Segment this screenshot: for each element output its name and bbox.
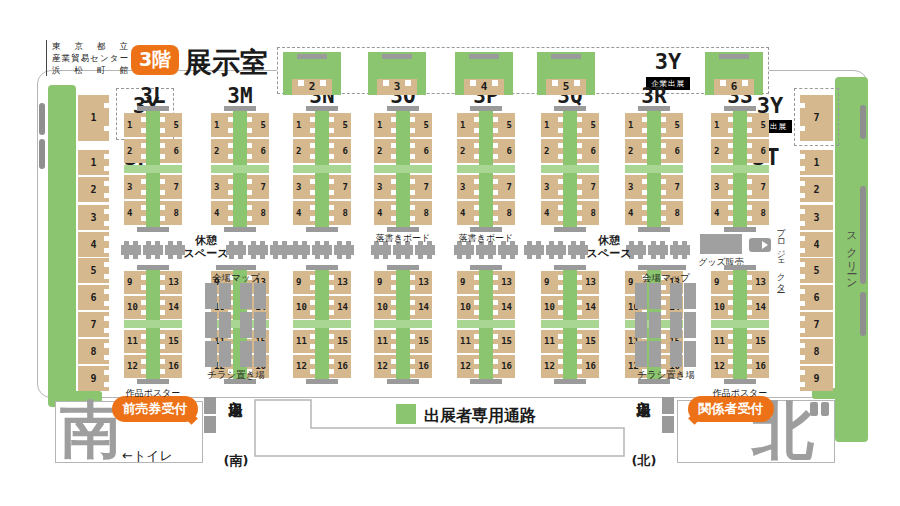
rest-chair — [527, 241, 532, 245]
chair-mark — [310, 154, 315, 159]
rest-chair — [571, 241, 576, 245]
island-header: 3R — [622, 84, 686, 108]
chair-mark — [474, 285, 479, 290]
chair-mark — [141, 205, 146, 210]
rest-chair — [238, 255, 243, 259]
chair-mark — [747, 117, 752, 122]
rest-chair — [488, 255, 493, 259]
chair-mark — [104, 301, 109, 306]
chair-mark — [228, 117, 233, 122]
aisle-cap — [719, 54, 749, 59]
rest-chair — [651, 255, 656, 259]
aisle-cap — [306, 379, 338, 384]
rest-chair — [168, 255, 173, 259]
rest-table — [546, 245, 566, 255]
chair-mark — [800, 289, 805, 294]
chair-mark — [800, 236, 805, 241]
chair-mark — [728, 300, 733, 305]
aisle-cap — [554, 227, 586, 232]
north-gate-paren: (北) — [620, 452, 668, 470]
chair-mark — [728, 359, 733, 364]
chair-mark — [474, 216, 479, 221]
aisle-crossing — [374, 165, 432, 173]
chair-mark — [747, 275, 752, 280]
chair-mark — [141, 369, 146, 374]
chair-mark — [642, 128, 647, 133]
screen-label: スクリーン — [843, 225, 858, 285]
chair-mark — [410, 285, 415, 290]
rest-space-line: スペース — [181, 247, 231, 260]
chair-mark — [474, 205, 479, 210]
aisle-crossing — [541, 320, 599, 328]
chair-mark — [391, 275, 396, 280]
chair-mark — [160, 275, 165, 280]
rest-chair — [293, 255, 298, 259]
chair-mark — [310, 190, 315, 195]
chair-mark — [329, 275, 334, 280]
chair-mark — [728, 154, 733, 159]
chair-mark — [558, 117, 563, 122]
chair-mark — [558, 334, 563, 339]
chair-mark — [391, 216, 396, 221]
flyer-table — [254, 283, 266, 309]
chair-mark — [558, 359, 563, 364]
north-mini-bar — [810, 402, 818, 416]
chair-mark — [410, 310, 415, 315]
chair-mark — [160, 359, 165, 364]
window-bar — [39, 103, 45, 135]
chair-mark — [104, 103, 109, 108]
chair-mark — [228, 179, 233, 184]
rest-table — [121, 245, 141, 255]
chair-mark — [642, 179, 647, 184]
aisle-cap — [387, 379, 419, 384]
chair-mark — [160, 300, 165, 305]
chair-mark — [800, 154, 805, 159]
chair-mark — [310, 216, 315, 221]
chair-mark — [247, 179, 252, 184]
chair-mark — [492, 80, 498, 86]
chair-mark — [247, 143, 252, 148]
rest-chair — [558, 255, 563, 259]
rest-chair — [682, 255, 687, 259]
rest-chair — [337, 255, 342, 259]
chair-mark — [410, 143, 415, 148]
flyer-table — [684, 312, 696, 338]
chair-mark — [728, 179, 733, 184]
aisle-crossing — [124, 320, 182, 328]
chair-mark — [493, 344, 498, 349]
rest-table — [476, 245, 496, 255]
chair-mark — [728, 128, 733, 133]
chair-mark — [642, 143, 647, 148]
chair-mark — [661, 310, 666, 315]
aisle-crossing — [457, 320, 515, 328]
chair-mark — [800, 209, 805, 214]
chair-mark — [577, 344, 582, 349]
rest-chair — [146, 241, 151, 245]
rest-chair — [324, 241, 329, 245]
flyer-table — [635, 312, 647, 338]
rest-chair — [396, 255, 401, 259]
chair-mark — [310, 128, 315, 133]
chair-mark — [160, 334, 165, 339]
chair-mark — [493, 369, 498, 374]
chair-mark — [310, 300, 315, 305]
chair-mark — [310, 179, 315, 184]
booth-table: 1 — [78, 95, 109, 141]
chair-mark — [141, 190, 146, 195]
chair-mark — [329, 359, 334, 364]
rest-chair — [510, 255, 515, 259]
chair-mark — [410, 190, 415, 195]
rest-chair — [466, 255, 471, 259]
chair-mark — [391, 179, 396, 184]
chair-mark — [410, 334, 415, 339]
rest-chair — [346, 241, 351, 245]
chair-mark — [391, 359, 396, 364]
chair-mark — [747, 128, 752, 133]
flyer-table — [254, 341, 266, 367]
rest-chair — [346, 255, 351, 259]
chair-mark — [577, 117, 582, 122]
aisle-crossing — [293, 165, 351, 173]
chair-mark — [558, 275, 563, 280]
chair-mark — [104, 221, 109, 226]
rest-table — [371, 245, 391, 255]
rest-space-label: 休憩スペース — [181, 234, 231, 260]
rest-chair — [282, 241, 287, 245]
chair-mark — [228, 143, 233, 148]
rest-chair — [155, 241, 160, 245]
chair-mark — [104, 316, 109, 321]
chair-mark — [160, 205, 165, 210]
chair-mark — [405, 80, 411, 86]
chair-mark — [391, 205, 396, 210]
rest-chair — [405, 255, 410, 259]
venue-name-block: 東京都立 産業貿易センター 浜松町館 — [46, 40, 128, 76]
chair-mark — [141, 344, 146, 349]
chair-mark — [410, 117, 415, 122]
chair-mark — [141, 334, 146, 339]
rest-table — [248, 245, 268, 255]
chair-mark — [160, 154, 165, 159]
chair-mark — [747, 179, 752, 184]
chair-mark — [141, 310, 146, 315]
chair-mark — [104, 166, 109, 171]
aisle-cap — [551, 54, 581, 59]
chair-mark — [642, 154, 647, 159]
chair-mark — [577, 190, 582, 195]
chair-mark — [141, 179, 146, 184]
chair-mark — [493, 117, 498, 122]
chair-mark — [747, 285, 752, 290]
chair-mark — [310, 310, 315, 315]
chair-mark — [160, 216, 165, 221]
chair-mark — [474, 154, 479, 159]
chair-mark — [577, 359, 582, 364]
aisle-cap — [554, 379, 586, 384]
chair-mark — [410, 179, 415, 184]
chair-mark — [329, 117, 334, 122]
chair-mark — [577, 205, 582, 210]
rest-table — [270, 245, 290, 255]
chair-mark — [310, 205, 315, 210]
chair-mark — [329, 310, 334, 315]
chair-mark — [661, 154, 666, 159]
north-mini-bar — [821, 402, 829, 416]
rest-space-line: 休憩 — [181, 234, 231, 247]
rest-table — [648, 245, 668, 255]
chair-mark — [310, 334, 315, 339]
chair-mark — [104, 209, 109, 214]
chair-mark — [493, 334, 498, 339]
aisle-crossing — [541, 165, 599, 173]
chair-mark — [310, 369, 315, 374]
window-bar — [860, 186, 866, 284]
chair-mark — [228, 205, 233, 210]
aisle-crossing — [124, 165, 182, 173]
chair-mark — [661, 334, 666, 339]
chair-mark — [728, 369, 733, 374]
rest-table — [143, 245, 163, 255]
island-header: 3L — [121, 84, 185, 108]
rest-chair — [155, 255, 160, 259]
rest-chair — [457, 255, 462, 259]
chair-mark — [493, 143, 498, 148]
venue-line: 東京都立 — [52, 40, 128, 52]
flyer-table — [219, 312, 231, 338]
rest-chair — [273, 241, 278, 245]
chair-mark — [577, 369, 582, 374]
chair-mark — [329, 128, 334, 133]
chair-mark — [160, 190, 165, 195]
rest-chair — [124, 255, 129, 259]
chair-mark — [410, 128, 415, 133]
left-aisle-strip — [48, 85, 76, 407]
rest-table — [454, 245, 474, 255]
chair-mark — [577, 310, 582, 315]
chair-mark — [558, 344, 563, 349]
chair-mark — [474, 310, 479, 315]
chair-mark — [104, 154, 109, 159]
chair-mark — [329, 216, 334, 221]
graffiti-board-label: 落書きボード — [454, 232, 518, 245]
chair-mark — [661, 179, 666, 184]
chair-mark — [661, 285, 666, 290]
rest-chair — [673, 241, 678, 245]
chair-mark — [800, 370, 805, 375]
chair-mark — [558, 216, 563, 221]
flyer-table — [635, 341, 647, 367]
north-gate-table — [662, 416, 674, 433]
chair-mark — [329, 143, 334, 148]
rest-chair — [293, 241, 298, 245]
chair-mark — [493, 128, 498, 133]
chair-mark — [747, 216, 752, 221]
rest-chair — [302, 255, 307, 259]
rest-chair — [124, 241, 129, 245]
aisle-crossing — [374, 320, 432, 328]
chair-mark — [391, 344, 396, 349]
aisle-cap — [470, 379, 502, 384]
chair-mark — [642, 205, 647, 210]
rest-chair — [651, 241, 656, 245]
floor-map: スクリーン 東京都立 産業貿易センター 浜松町館 3階 展示室 3Y 企業出展 … — [0, 0, 900, 506]
chair-mark — [493, 300, 498, 305]
chair-mark — [228, 154, 233, 159]
aisle-crossing — [293, 320, 351, 328]
south-gate-table — [204, 397, 216, 414]
chair-mark — [661, 344, 666, 349]
chair-mark — [141, 143, 146, 148]
projector-label: プロジェクター — [774, 221, 787, 290]
chair-mark — [558, 205, 563, 210]
aisle-cap — [724, 379, 756, 384]
toilet-label: ←トイレ — [122, 447, 173, 465]
rest-chair — [501, 255, 506, 259]
chair-mark — [329, 334, 334, 339]
rest-chair — [146, 255, 151, 259]
rest-space-line: スペース — [584, 247, 634, 260]
flyer-table — [670, 312, 682, 338]
chair-mark — [329, 285, 334, 290]
chair-mark — [160, 143, 165, 148]
rest-chair — [324, 255, 329, 259]
chair-mark — [160, 179, 165, 184]
chair-mark — [493, 275, 498, 280]
rest-chair — [133, 255, 138, 259]
chair-mark — [493, 190, 498, 195]
goods-table — [700, 234, 742, 254]
aisle-cap — [382, 54, 412, 59]
rest-chair — [374, 255, 379, 259]
aisle-crossing — [625, 165, 683, 173]
chair-mark — [329, 190, 334, 195]
chair-mark — [747, 359, 752, 364]
chair-mark — [800, 181, 805, 186]
aisle-crossing — [457, 165, 515, 173]
rest-chair — [558, 241, 563, 245]
rest-chair — [302, 241, 307, 245]
rest-chair — [638, 255, 643, 259]
chair-mark — [141, 275, 146, 280]
chair-mark — [470, 80, 476, 86]
flyer-table — [684, 283, 696, 309]
chair-mark — [642, 190, 647, 195]
chair-mark — [310, 143, 315, 148]
rest-chair — [315, 255, 320, 259]
rest-table — [290, 245, 310, 255]
flyer-area-label: チラシ置き場 — [200, 369, 272, 382]
chair-mark — [800, 328, 805, 333]
chair-mark — [800, 355, 805, 360]
chair-mark — [493, 216, 498, 221]
window-bar — [39, 139, 45, 169]
chair-mark — [720, 80, 726, 86]
rest-chair — [536, 241, 541, 245]
chair-mark — [800, 221, 805, 226]
chair-mark — [747, 310, 752, 315]
chair-mark — [391, 154, 396, 159]
chair-mark — [800, 166, 805, 171]
rest-chair — [168, 241, 173, 245]
chair-mark — [577, 300, 582, 305]
chair-mark — [642, 117, 647, 122]
chair-mark — [104, 126, 109, 131]
chair-mark — [474, 334, 479, 339]
chair-mark — [410, 359, 415, 364]
aisle-cap — [137, 379, 169, 384]
rest-chair — [660, 255, 665, 259]
chair-mark — [104, 382, 109, 387]
chair-mark — [577, 143, 582, 148]
chair-mark — [661, 359, 666, 364]
flyer-table — [649, 283, 661, 309]
flyer-table — [205, 283, 217, 309]
chair-mark — [800, 316, 805, 321]
north-gate-table — [662, 397, 674, 414]
aisle-cap — [137, 227, 169, 232]
chair-mark — [160, 128, 165, 133]
chair-mark — [728, 216, 733, 221]
rest-table — [415, 245, 435, 255]
chair-mark — [391, 143, 396, 148]
venue-line: 産業貿易センター — [52, 52, 128, 64]
venue-line: 浜松町館 — [52, 64, 128, 76]
chair-mark — [728, 190, 733, 195]
rest-chair — [238, 241, 243, 245]
chair-mark — [410, 300, 415, 305]
flyer-table — [240, 283, 252, 309]
chair-mark — [329, 179, 334, 184]
chair-mark — [104, 289, 109, 294]
chair-mark — [577, 275, 582, 280]
chair-mark — [747, 369, 752, 374]
chair-mark — [141, 216, 146, 221]
chair-mark — [728, 310, 733, 315]
chair-mark — [747, 334, 752, 339]
chair-mark — [141, 285, 146, 290]
chair-mark — [728, 143, 733, 148]
chair-mark — [391, 190, 396, 195]
chair-mark — [104, 262, 109, 267]
chair-mark — [247, 128, 252, 133]
chair-mark — [800, 343, 805, 348]
chair-mark — [728, 285, 733, 290]
chair-mark — [160, 369, 165, 374]
rest-chair — [133, 241, 138, 245]
chair-mark — [577, 128, 582, 133]
chair-mark — [661, 190, 666, 195]
chair-mark — [800, 382, 805, 387]
chair-mark — [474, 190, 479, 195]
chair-mark — [747, 143, 752, 148]
aisle-cap — [469, 54, 499, 59]
lobby-outline — [254, 399, 626, 457]
chair-mark — [104, 274, 109, 279]
rest-table — [498, 245, 518, 255]
aisle-cap — [638, 227, 670, 232]
flyer-table — [635, 283, 647, 309]
south-gate-table — [204, 416, 216, 433]
chair-mark — [742, 80, 748, 86]
aisle-cap — [646, 265, 686, 270]
rest-chair — [282, 255, 287, 259]
chair-mark — [141, 154, 146, 159]
aisle-crossing — [711, 165, 769, 173]
island-header: 3M — [208, 84, 272, 108]
